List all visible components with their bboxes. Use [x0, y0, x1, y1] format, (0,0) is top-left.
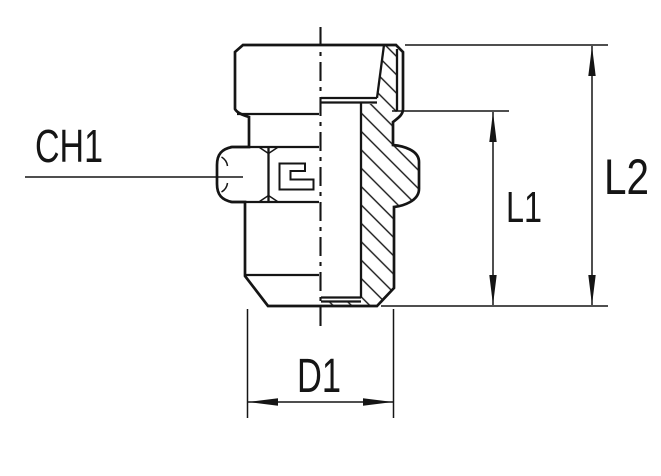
dimension-l2: L2	[405, 45, 649, 305]
dimension-ch1: CH1	[25, 120, 243, 177]
d1-arrow-left	[248, 398, 278, 405]
l1-arrow-down	[489, 275, 496, 305]
dimension-l1: L1	[392, 111, 542, 305]
fitting-technical-drawing: CH1 L1 L2 D1	[0, 0, 661, 476]
d1-arrow-right	[363, 398, 393, 405]
l2-arrow-up	[588, 46, 595, 76]
fitting-body	[217, 45, 419, 306]
l2-label: L2	[604, 149, 649, 205]
l1-label: L1	[506, 183, 542, 232]
l1-arrow-up	[489, 112, 496, 142]
ch1-label: CH1	[35, 120, 103, 172]
drawing-canvas: CH1 L1 L2 D1	[0, 0, 661, 476]
l2-arrow-down	[588, 275, 595, 305]
d1-label: D1	[297, 350, 341, 403]
